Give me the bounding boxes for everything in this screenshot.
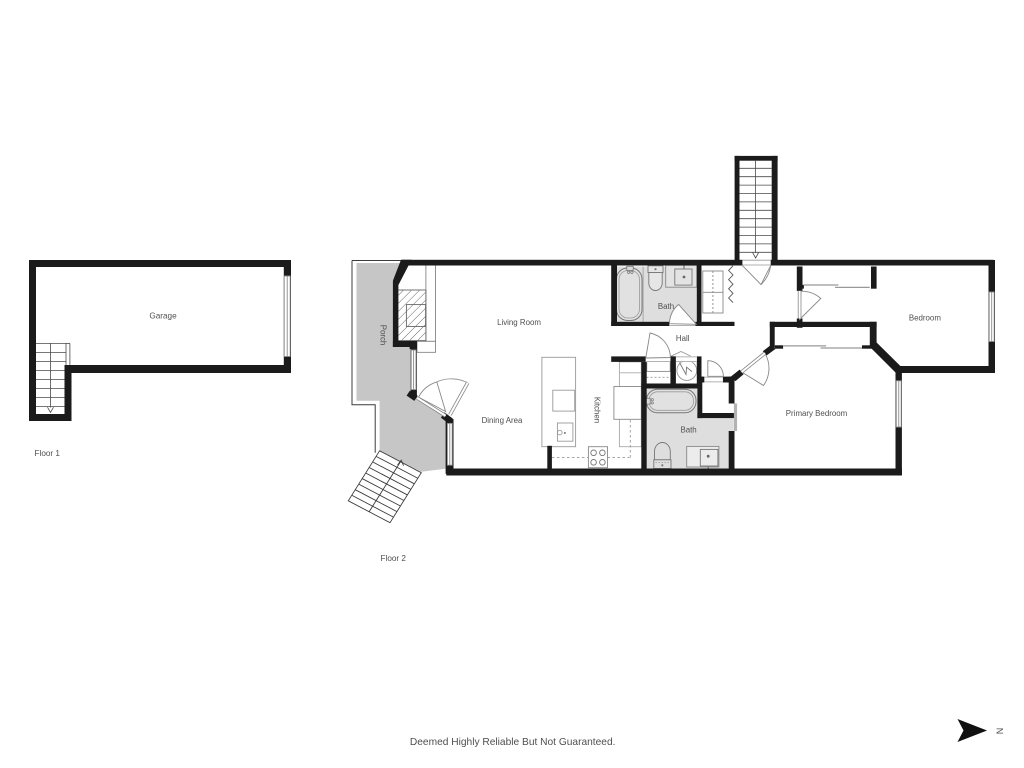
svg-text:Kitchen: Kitchen [593,397,602,423]
svg-text:Bedroom: Bedroom [909,314,941,323]
svg-text:Deemed Highly Reliable But Not: Deemed Highly Reliable But Not Guarantee… [410,737,616,748]
svg-text:N: N [995,728,1005,735]
svg-text:Hall: Hall [676,334,690,343]
svg-text:Bath: Bath [680,426,696,435]
svg-text:Garage: Garage [149,312,177,321]
svg-text:Floor 2: Floor 2 [381,554,407,563]
svg-text:Living Room: Living Room [497,318,541,327]
svg-text:Bath: Bath [658,302,674,311]
svg-text:Floor 1: Floor 1 [35,449,61,458]
svg-text:Dining Area: Dining Area [482,416,523,425]
svg-text:Primary Bedroom: Primary Bedroom [786,409,848,418]
svg-text:Porch: Porch [379,325,388,346]
